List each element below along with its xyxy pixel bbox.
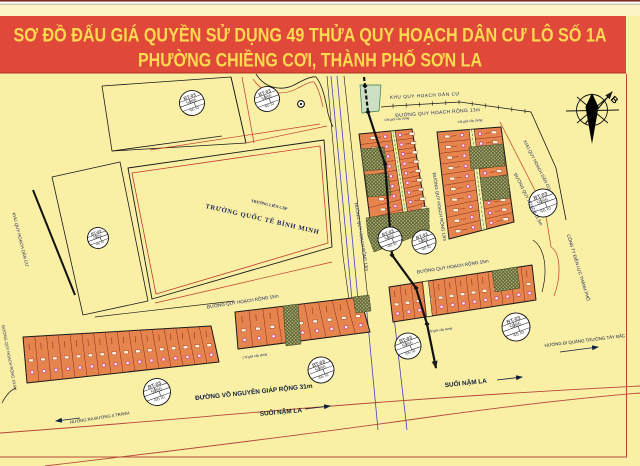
svg-text:SƠ ĐỒ ĐẤU GIÁ QUYỀN SỬ DỤNG 49: SƠ ĐỒ ĐẤU GIÁ QUYỀN SỬ DỤNG 49 THỬA QUY … bbox=[14, 25, 607, 47]
svg-text:PHƯỜNG CHIỀNG CƠI, THÀNH PHỐ S: PHƯỜNG CHIỀNG CƠI, THÀNH PHỐ SƠN LA bbox=[138, 50, 482, 72]
